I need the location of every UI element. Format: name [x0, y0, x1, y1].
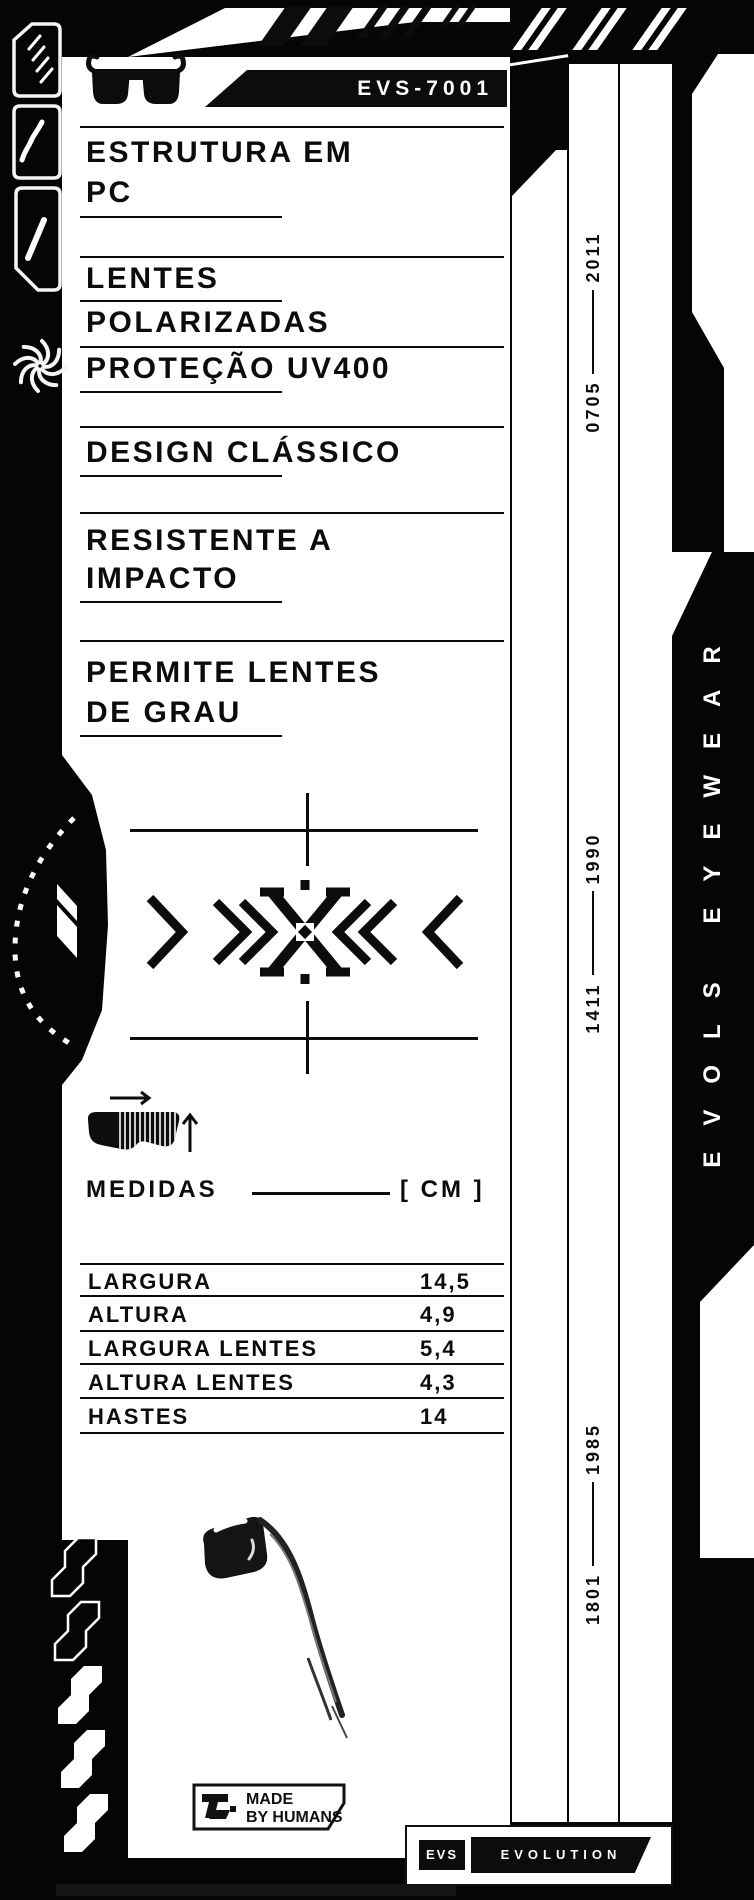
- curve-slash-icon: [14, 106, 60, 178]
- table-label: HASTES: [88, 1406, 189, 1428]
- sketch: [190, 1510, 360, 1750]
- divider: [80, 426, 504, 428]
- made-text-1: MADE: [246, 1791, 293, 1808]
- brand-vertical: EVOLS EYEWEAR: [700, 594, 726, 1194]
- table-value: 14: [420, 1406, 448, 1428]
- divider: [80, 346, 504, 348]
- serial-part: 1411: [583, 983, 604, 1034]
- serial-part: 1985: [583, 1423, 604, 1475]
- zigzag-stripes: [46, 1538, 116, 1878]
- measures-title: MEDIDAS: [86, 1178, 218, 1202]
- slash-icon: [16, 188, 60, 290]
- table-value: 5,4: [420, 1338, 457, 1360]
- serial-part: 1990: [583, 832, 604, 884]
- table-value: 4,3: [420, 1372, 457, 1394]
- feature-underline: [80, 601, 282, 603]
- feature-underline: [80, 300, 282, 302]
- evs-badge: EVS: [419, 1840, 465, 1870]
- table-line: [80, 1295, 504, 1297]
- feature-underline: [80, 735, 282, 737]
- sunglasses-icon: [86, 54, 186, 116]
- lane-c: [620, 64, 672, 1822]
- table-label: LARGURA LENTES: [88, 1338, 318, 1360]
- right-strip-bottom: [700, 1245, 754, 1558]
- hatch-icon: [14, 24, 60, 96]
- table-label: ALTURA LENTES: [88, 1372, 295, 1394]
- serial-number: 14111990: [582, 813, 604, 1053]
- divider: [80, 126, 504, 128]
- serial-number: 07052011: [582, 214, 604, 450]
- made-text-2: BY HUMANS: [246, 1809, 343, 1826]
- divider: [80, 640, 504, 642]
- table-line: [80, 1432, 504, 1434]
- feature-underline: [80, 475, 282, 477]
- feature-text: DESIGN CLÁSSICO: [86, 438, 402, 468]
- right-strip-narrow: [724, 368, 754, 552]
- table-line: [80, 1263, 504, 1265]
- bottom-strip: [56, 1884, 456, 1896]
- goggles-measure-icon: [84, 1090, 214, 1170]
- table-value: 14,5: [420, 1271, 471, 1293]
- feature-underline: [80, 391, 282, 393]
- table-label: ALTURA: [88, 1304, 189, 1326]
- badge-container: EVS EVOLUTION: [405, 1825, 673, 1886]
- feature-text: LENTES: [86, 264, 219, 294]
- right-strip-top: [692, 54, 754, 312]
- table-label: LARGURA: [88, 1271, 212, 1293]
- lane-a: [512, 150, 567, 1822]
- feature-text: PERMITE LENTES: [86, 658, 381, 688]
- table-line: [80, 1397, 504, 1399]
- measures-unit: [ CM ]: [400, 1178, 485, 1202]
- right-strip-transition: [692, 312, 754, 368]
- table-value: 4,9: [420, 1304, 457, 1326]
- serial-part: 1801: [583, 1573, 604, 1625]
- crosshair-tick: [306, 1001, 309, 1074]
- x-emblem: [140, 878, 470, 990]
- feature-text: ESTRUTURA EM: [86, 138, 353, 168]
- made-by-humans-badge: MADE BY HUMANS: [190, 1782, 348, 1832]
- model-banner: EVS-7001: [205, 70, 507, 107]
- crosshair-line: [130, 1037, 478, 1040]
- crosshair-line: [130, 829, 478, 832]
- wing-icon: [57, 884, 77, 958]
- serial-number: 18011985: [582, 1405, 604, 1643]
- crosshair-tick: [306, 793, 309, 866]
- table-line: [80, 1363, 504, 1365]
- feature-text: POLARIZADAS: [86, 308, 330, 338]
- feature-text: PC: [86, 178, 133, 208]
- feature-text: IMPACTO: [86, 564, 239, 594]
- feature-text: PROTEÇÃO UV400: [86, 354, 391, 384]
- serial-dash: [592, 1482, 595, 1566]
- serial-part: 2011: [583, 231, 604, 282]
- feature-text: RESISTENTE A: [86, 526, 333, 556]
- divider: [80, 512, 504, 514]
- evolution-badge: EVOLUTION: [471, 1837, 651, 1873]
- serial-part: 0705: [583, 381, 604, 433]
- model-number: EVS-7001: [357, 77, 507, 101]
- measures-dash: [252, 1192, 390, 1195]
- feature-underline: [80, 216, 282, 218]
- serial-dash: [592, 290, 595, 374]
- table-line: [80, 1330, 504, 1332]
- feature-text: DE GRAU: [86, 698, 242, 728]
- serial-dash: [592, 892, 595, 976]
- divider: [80, 256, 504, 258]
- spec-sheet: EVS-7001 ESTRUTURA EM PC LENTES POLARIZA…: [0, 0, 754, 1900]
- aperture-icon: [15, 341, 65, 391]
